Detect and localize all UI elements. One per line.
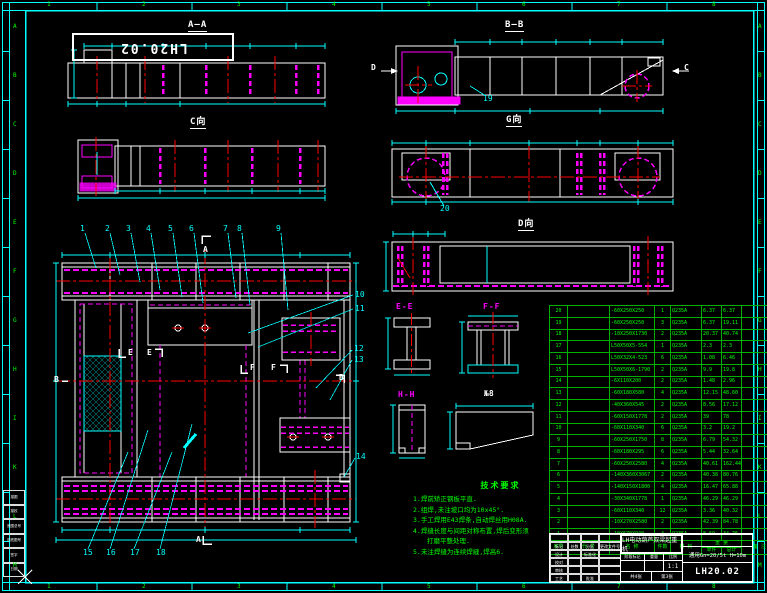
zone-number-top-1: 1 (47, 2, 51, 8)
callout-19: 19 (483, 95, 493, 103)
title-block-cell (550, 534, 568, 542)
title-block-cell: 校对 (550, 558, 568, 566)
callout-2: 2 (105, 225, 110, 233)
callout-4: 4 (146, 225, 151, 233)
section-label-ee: E-E (396, 303, 413, 311)
zone-letter-left-B: B (13, 73, 17, 79)
title-block-cell (581, 558, 599, 566)
arrow-letter-d: D (371, 64, 376, 72)
title-block-cell: 处数 (568, 542, 581, 550)
zone-number-top-3: 3 (237, 2, 241, 8)
parts-list-row: 3-60X110X34012Q235A3.3640.32 (550, 505, 767, 517)
parts-list-row: 10-60X110X3406Q235A3.219.2 (550, 423, 767, 435)
title-block-cell: 批准 (581, 574, 599, 582)
zone-letter-right-K: K (758, 465, 762, 471)
callout-3: 3 (126, 225, 131, 233)
title-block-cell: 工艺 (550, 574, 568, 582)
title-block-revision-grid: 标记处数分区更改文件号设计标准化校对审核工艺批准 (550, 534, 621, 582)
parts-list-row: 11-60X150X17782Q235A3978 (550, 411, 767, 423)
parts-list-row: 4-30X340X17781Q235A46.2946.29 (550, 494, 767, 506)
title-block-cell: 标记 (550, 542, 568, 550)
drawing-number: LH20.02 (682, 562, 753, 582)
callout-9: 9 (276, 225, 281, 233)
zone-number-top-6: 6 (522, 2, 526, 8)
drawing-title: LH电动葫芦双梁起重机 (620, 534, 683, 554)
title-block-cell (568, 566, 581, 574)
zone-letter-left-F: F (13, 269, 17, 275)
title-block-cell (599, 558, 621, 566)
corner-drawing-number: LH20.02 (119, 41, 188, 54)
title-block-cell: 设计 (550, 550, 568, 558)
zone-letter-right-G: G (758, 318, 762, 324)
zone-letter-left-M: M (13, 563, 17, 569)
zone-number-top-5: 5 (427, 2, 431, 8)
zone-letter-left-I: I (13, 416, 17, 422)
callout-1: 1 (80, 225, 85, 233)
title-block-cell: 更改文件号 (599, 542, 621, 550)
parts-list-row: 5-140X150X18004Q235A16.4765.88 (550, 482, 767, 494)
zone-letter-left-K: K (13, 465, 17, 471)
parts-list-row: 19-60X250X2503Q235A6.3719.11 (550, 317, 767, 329)
title-block-cell (599, 550, 621, 558)
view-label-d: D向 (518, 220, 534, 231)
zone-number-bottom-7: 7 (617, 584, 621, 590)
section-letter-a-bottom: A (196, 536, 201, 544)
zone-number-top-4: 4 (332, 2, 336, 8)
parts-list-row: 7-60X250X25804Q235A40.61162.44 (550, 458, 767, 470)
zone-letter-left-L: L (13, 514, 17, 520)
title-block-cell: 审核 (550, 566, 568, 574)
section-letter-e-right: E (147, 349, 152, 357)
callout-11: 11 (355, 305, 365, 313)
callout-15: 15 (83, 549, 93, 557)
section-letter-e-left: E (128, 349, 133, 357)
callout-14: 14 (356, 453, 366, 461)
zone-number-bottom-6: 6 (522, 584, 526, 590)
zone-number-top-7: 7 (617, 2, 621, 8)
callout-18: 18 (156, 549, 166, 557)
title-block-cell (599, 566, 621, 574)
zone-letter-right-I: I (758, 416, 762, 422)
margin-table-row: 签字 (3, 548, 25, 563)
parts-list-row: 20-60X250X2501Q235A6.376.37 (550, 306, 767, 318)
zone-number-bottom-8: 8 (712, 584, 716, 590)
parts-list-row: 9-60X250X17508Q235A6.7954.32 (550, 435, 767, 447)
zone-letter-left-H: H (13, 367, 17, 373)
title-block-cell (568, 534, 581, 542)
parts-list-row: 16L50X32X4-5236Q235A1.086.46 (550, 353, 767, 365)
title-block-cell (599, 574, 621, 582)
view-label-aa: A—A (188, 21, 207, 32)
parts-list-row: 17L50X50X5-5541Q235A2.32.3 (550, 341, 767, 353)
parts-list-row: 8-60X180X2956Q235A5.4432.64 (550, 447, 767, 459)
section-letter-a-top: A (203, 246, 208, 254)
callout-5: 5 (168, 225, 173, 233)
parts-list-row: 13-60X180X5804Q235A12.1548.60 (550, 388, 767, 400)
view-label-bb: B—B (505, 21, 524, 32)
zone-letter-left-C: C (13, 122, 17, 128)
zone-number-top-2: 2 (142, 2, 146, 8)
zone-number-bottom-3: 3 (237, 584, 241, 590)
zone-number-bottom-1: 1 (47, 584, 51, 590)
zone-letter-right-C: C (758, 122, 762, 128)
parts-list-row: 15L50X50X6-17902Q235A9.919.8 (550, 364, 767, 376)
section-letter-f-left: F (250, 364, 255, 372)
zone-letter-left-E: E (13, 220, 17, 226)
title-block-cell: 分区 (581, 542, 599, 550)
zone-letter-right-E: E (758, 220, 762, 226)
title-block-cell (568, 574, 581, 582)
part-label-no8: №8 (484, 390, 494, 398)
title-block-cell (581, 566, 599, 574)
zone-letter-right-B: B (758, 73, 762, 79)
corner-drawing-number-box: LH20.02 (72, 33, 234, 61)
callout-16: 16 (106, 549, 116, 557)
section-label-ff: F-F (483, 303, 500, 311)
zone-letter-left-G: G (13, 318, 17, 324)
title-block-cell (568, 558, 581, 566)
zone-letter-right-H: H (758, 367, 762, 373)
zone-number-top-8: 8 (712, 2, 716, 8)
title-block-cell (581, 534, 599, 542)
parts-list-row: 2-10X270X25802Q235A42.3984.78 (550, 517, 767, 529)
section-label-hh: H-H (398, 391, 415, 399)
parts-list-row: 18-10X250X17302Q235A20.3740.74 (550, 329, 767, 341)
callout-7: 7 (223, 225, 228, 233)
parts-list-row: 14-6X110X2002Q235A1.482.96 (550, 376, 767, 388)
section-letter-b-left: B (54, 376, 59, 384)
parts-list-table: 20-60X250X2501Q235A6.376.3719-60X250X250… (549, 305, 767, 555)
parts-list-row: 6-140X360X30672Q235A40.3880.76 (550, 470, 767, 482)
zone-letter-left-D: D (13, 171, 17, 177)
zone-number-bottom-5: 5 (427, 584, 431, 590)
sheet-number: 第3张 (651, 571, 683, 582)
parts-list-row: 12-40X360X5452Q235A8.5617.12 (550, 400, 767, 412)
title-block: 标记处数分区更改文件号设计标准化校对审核工艺批准 LH电动葫芦双梁起重机 阶段标… (549, 533, 753, 583)
callout-8: 8 (237, 225, 242, 233)
machine-spec: 通用Gn=20/5t H=10m (682, 546, 753, 563)
sheets-total: 共4张 (620, 571, 652, 582)
title-block-cell (568, 550, 581, 558)
arrow-letter-c: C (684, 64, 689, 72)
callout-17: 17 (130, 549, 140, 557)
callout-10: 10 (355, 291, 365, 299)
callout-20: 20 (440, 205, 450, 213)
callout-6: 6 (189, 225, 194, 233)
margin-table-row: 底图总号 (3, 519, 25, 534)
zone-letter-left-A: A (13, 24, 17, 30)
callout-12: 12 (354, 345, 364, 353)
zone-letter-right-L: L (758, 514, 762, 520)
zone-number-bottom-2: 2 (142, 584, 146, 590)
callout-13: 13 (354, 356, 364, 364)
margin-table-row: 描图 (3, 490, 25, 505)
section-letter-f-right: F (271, 364, 276, 372)
title-block-cell (599, 534, 621, 542)
view-label-g: G向 (506, 116, 522, 127)
view-label-c: C向 (190, 118, 206, 129)
zone-letter-right-A: A (758, 24, 762, 30)
zone-number-bottom-4: 4 (332, 584, 336, 590)
zone-letter-right-M: M (758, 563, 762, 569)
zone-letter-right-D: D (758, 171, 762, 177)
title-block-cell: 标准化 (581, 550, 599, 558)
margin-table-row: 旧底图号 (3, 534, 25, 549)
cad-sheet: LH20.02 A—A B—B C向 G向 D向 E-E F-F H-H №8 … (0, 0, 767, 593)
section-letter-b-right: B (339, 374, 344, 382)
zone-letter-right-F: F (758, 269, 762, 275)
